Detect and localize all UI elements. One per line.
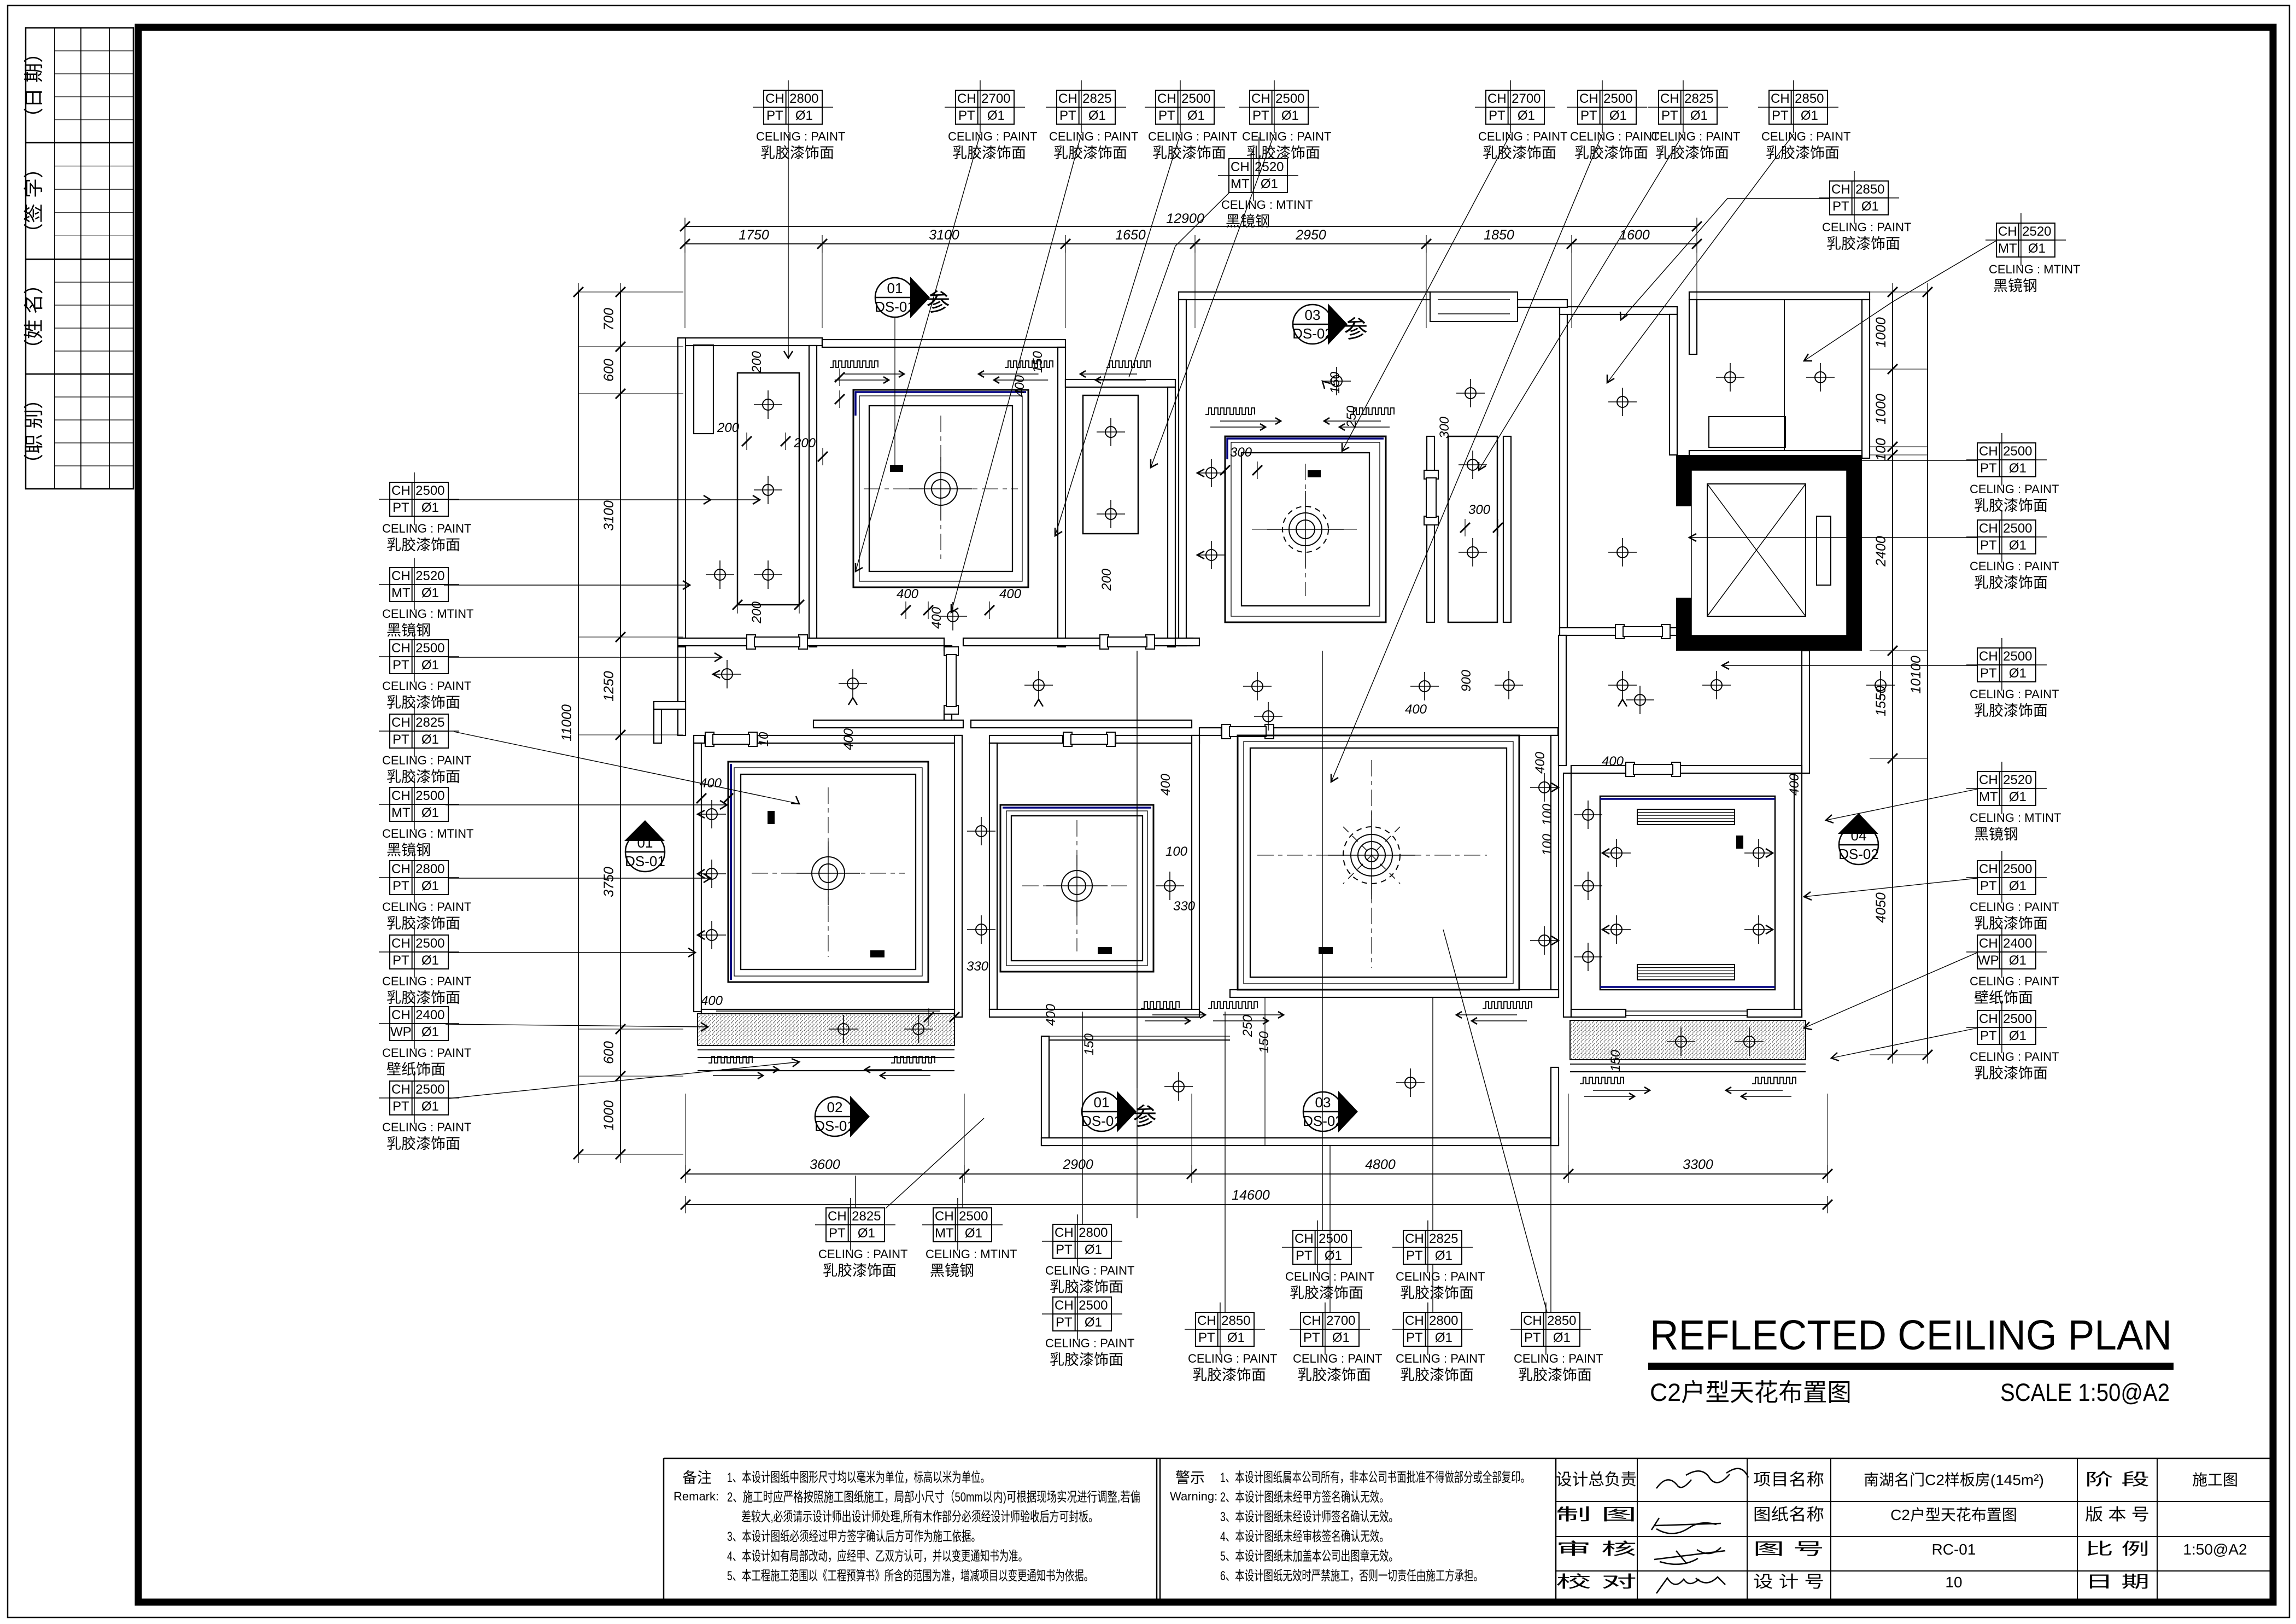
- svg-text:CELING : PAINT: CELING : PAINT: [1514, 1352, 1603, 1365]
- svg-text:400: 400: [999, 587, 1022, 601]
- svg-text:制 图: 制 图: [1556, 1506, 1637, 1524]
- svg-text:Ø1: Ø1: [421, 732, 439, 747]
- svg-text:100: 100: [1873, 438, 1889, 461]
- svg-text:2500: 2500: [1275, 91, 1304, 106]
- svg-text:乳胶漆饰面: 乳胶漆饰面: [1050, 1352, 1123, 1368]
- svg-text:400: 400: [701, 994, 723, 1008]
- svg-text:乳胶漆饰面: 乳胶漆饰面: [386, 694, 460, 711]
- svg-text:1000: 1000: [1873, 317, 1889, 348]
- svg-text:MT: MT: [391, 805, 411, 820]
- svg-text:Ø1: Ø1: [421, 879, 439, 893]
- svg-text:Ø1: Ø1: [421, 500, 439, 515]
- svg-text:MT: MT: [1979, 790, 1998, 804]
- svg-text:Ø1: Ø1: [2009, 461, 2026, 476]
- svg-text:400: 400: [1044, 1003, 1058, 1026]
- svg-text:MT: MT: [1998, 241, 2017, 256]
- svg-text:CH: CH: [391, 936, 411, 951]
- svg-text:Ø1: Ø1: [1187, 108, 1205, 123]
- svg-text:DS-01: DS-01: [1081, 1113, 1122, 1129]
- svg-text:03: 03: [1305, 307, 1321, 323]
- svg-text:Ø1: Ø1: [1518, 108, 1535, 123]
- svg-text:Ø1: Ø1: [2009, 953, 2026, 968]
- svg-text:参: 参: [1133, 1103, 1157, 1130]
- svg-text:PT: PT: [393, 1099, 409, 1114]
- svg-text:CELING : PAINT: CELING : PAINT: [1188, 1352, 1277, 1365]
- svg-text:PT: PT: [1832, 199, 1849, 214]
- svg-text:Ø1: Ø1: [1085, 1242, 1102, 1257]
- svg-text:250: 250: [1344, 405, 1359, 428]
- svg-text:PT: PT: [1296, 1248, 1313, 1263]
- svg-text:Ø1: Ø1: [1281, 108, 1299, 123]
- svg-text:CELING : PAINT: CELING : PAINT: [1570, 130, 1659, 143]
- svg-text:CH: CH: [1979, 862, 1998, 877]
- svg-text:CELING : PAINT: CELING : PAINT: [756, 130, 845, 143]
- svg-text:2、本设计图纸未经甲方签名确认无效。: 2、本设计图纸未经甲方签名确认无效。: [1220, 1489, 1389, 1505]
- svg-text:乳胶漆饰面: 乳胶漆饰面: [1766, 145, 1840, 161]
- svg-text:PT: PT: [1772, 108, 1789, 123]
- svg-text:CH: CH: [391, 1082, 411, 1097]
- svg-text:Remark:: Remark:: [673, 1489, 719, 1503]
- svg-text:CH: CH: [1979, 1012, 1998, 1026]
- svg-text:1750: 1750: [739, 227, 769, 243]
- svg-text:3、本设计图纸必须经过甲方签字确认后方可作为施工依据。: 3、本设计图纸必须经过甲方签字确认后方可作为施工依据。: [727, 1529, 981, 1544]
- svg-text:CH: CH: [1231, 160, 1250, 174]
- svg-text:100: 100: [1540, 833, 1555, 856]
- svg-text:CELING : PAINT: CELING : PAINT: [382, 900, 471, 914]
- svg-text:设计总负责: 设计总负责: [1556, 1471, 1637, 1489]
- svg-text:14600: 14600: [1232, 1188, 1270, 1203]
- svg-text:Ø1: Ø1: [1085, 1315, 1102, 1330]
- svg-text:2520: 2520: [415, 569, 444, 583]
- svg-text:CELING : PAINT: CELING : PAINT: [382, 753, 471, 767]
- svg-text:2500: 2500: [1079, 1298, 1108, 1313]
- svg-text:校 对: 校 对: [1556, 1573, 1637, 1591]
- svg-text:330: 330: [1173, 899, 1196, 914]
- svg-text:400: 400: [1533, 751, 1548, 774]
- svg-text:400: 400: [1602, 754, 1624, 769]
- svg-text:黑镜钢: 黑镜钢: [386, 842, 431, 858]
- svg-text:2825: 2825: [1429, 1231, 1458, 1246]
- svg-text:1、本设计图纸属本公司所有，非本公司书面批准不得做部分或全部: 1、本设计图纸属本公司所有，非本公司书面批准不得做部分或全部复印。: [1220, 1470, 1530, 1485]
- svg-text:200: 200: [793, 436, 816, 451]
- svg-text:CELING : PAINT: CELING : PAINT: [1970, 900, 2059, 914]
- svg-text:CELING : PAINT: CELING : PAINT: [1761, 130, 1850, 143]
- svg-text:2500: 2500: [415, 788, 444, 803]
- svg-text:WP: WP: [390, 1025, 412, 1039]
- svg-text:200: 200: [717, 420, 740, 435]
- svg-text:（职 别）: （职 别）: [22, 389, 45, 474]
- svg-text:CELING : MTINT: CELING : MTINT: [1989, 262, 2080, 276]
- svg-text:Ø1: Ø1: [987, 108, 1005, 123]
- svg-text:PT: PT: [1056, 1315, 1073, 1330]
- svg-text:乳胶漆饰面: 乳胶漆饰面: [1826, 236, 1900, 252]
- svg-text:CELING : PAINT: CELING : PAINT: [1970, 559, 2059, 573]
- svg-text:2850: 2850: [1221, 1313, 1250, 1328]
- svg-text:乳胶漆饰面: 乳胶漆饰面: [1192, 1367, 1266, 1383]
- svg-text:2825: 2825: [852, 1209, 881, 1224]
- svg-text:CH: CH: [391, 569, 411, 583]
- svg-text:2825: 2825: [1684, 91, 1713, 106]
- svg-text:CH: CH: [935, 1209, 954, 1224]
- svg-text:CELING : PAINT: CELING : PAINT: [1970, 482, 2059, 496]
- svg-text:2700: 2700: [1326, 1313, 1355, 1328]
- svg-text:CH: CH: [1251, 91, 1270, 106]
- svg-text:Ø1: Ø1: [1553, 1330, 1571, 1345]
- svg-text:DS-02: DS-02: [1838, 846, 1879, 862]
- svg-text:CH: CH: [1058, 91, 1077, 106]
- svg-text:乳胶漆饰面: 乳胶漆饰面: [1518, 1367, 1592, 1383]
- svg-text:3300: 3300: [1683, 1157, 1713, 1172]
- svg-text:PT: PT: [1980, 666, 1997, 681]
- svg-text:Ø1: Ø1: [421, 953, 439, 968]
- svg-text:CH: CH: [391, 1008, 411, 1023]
- svg-text:1550: 1550: [1873, 686, 1889, 716]
- svg-text:CH: CH: [1660, 91, 1679, 106]
- svg-text:乳胶漆饰面: 乳胶漆饰面: [823, 1263, 897, 1279]
- svg-text:CELING : PAINT: CELING : PAINT: [948, 130, 1037, 143]
- svg-text:12900: 12900: [1166, 211, 1204, 226]
- svg-text:1000: 1000: [601, 1100, 617, 1131]
- svg-text:乳胶漆饰面: 乳胶漆饰面: [1655, 145, 1729, 161]
- svg-text:CH: CH: [1405, 1313, 1424, 1328]
- svg-text:CELING : PAINT: CELING : PAINT: [1396, 1270, 1485, 1283]
- svg-text:差较大,必须请示设计师出设计师处理,所有木作部分必须经设计师: 差较大,必须请示设计师出设计师处理,所有木作部分必须经设计师验收后方可封板。: [741, 1509, 1098, 1524]
- svg-text:4、本设计如有局部改动，应经甲、乙双方认可，并以变更通知书为: 4、本设计如有局部改动，应经甲、乙双方认可，并以变更通知书为准。: [727, 1549, 1028, 1564]
- svg-text:RC-01: RC-01: [1932, 1541, 1976, 1558]
- svg-text:4、本设计图纸未经审核签名确认无效。: 4、本设计图纸未经审核签名确认无效。: [1220, 1529, 1389, 1544]
- svg-text:4050: 4050: [1873, 892, 1889, 923]
- svg-text:2800: 2800: [789, 91, 818, 106]
- svg-text:150: 150: [1030, 350, 1045, 373]
- svg-text:审 核: 审 核: [1556, 1540, 1637, 1558]
- svg-text:2700: 2700: [1512, 91, 1541, 106]
- svg-text:Ø1: Ø1: [421, 1099, 439, 1114]
- svg-text:PT: PT: [1158, 108, 1175, 123]
- svg-text:CH: CH: [391, 788, 411, 803]
- svg-text:6、本设计图纸无效时严禁施工，否则一切责任由施工方承担。: 6、本设计图纸无效时严禁施工，否则一切责任由施工方承担。: [1220, 1568, 1483, 1584]
- svg-text:2500: 2500: [1181, 91, 1210, 106]
- svg-text:1850: 1850: [1484, 227, 1514, 243]
- svg-text:2700: 2700: [981, 91, 1010, 106]
- svg-text:Ø1: Ø1: [1690, 108, 1708, 123]
- svg-text:2500: 2500: [1603, 91, 1632, 106]
- svg-text:乳胶漆饰面: 乳胶漆饰面: [1974, 1065, 2048, 1082]
- svg-text:2800: 2800: [1429, 1313, 1458, 1328]
- svg-text:CELING : PAINT: CELING : PAINT: [1970, 974, 2059, 988]
- svg-text:乳胶漆饰面: 乳胶漆饰面: [1483, 145, 1556, 161]
- svg-text:300: 300: [1230, 445, 1252, 460]
- svg-text:900: 900: [1459, 669, 1474, 692]
- svg-text:Ø1: Ø1: [1435, 1248, 1452, 1263]
- svg-text:PT: PT: [1524, 1330, 1541, 1345]
- svg-text:150: 150: [1608, 1049, 1623, 1072]
- svg-text:CELING : MTINT: CELING : MTINT: [926, 1247, 1017, 1261]
- svg-text:CELING : PAINT: CELING : PAINT: [1970, 687, 2059, 701]
- svg-text:2500: 2500: [959, 1209, 988, 1224]
- svg-text:PT: PT: [393, 500, 409, 515]
- svg-text:01: 01: [887, 280, 903, 296]
- svg-text:300: 300: [1468, 503, 1491, 517]
- svg-text:乳胶漆饰面: 乳胶漆饰面: [1290, 1285, 1363, 1301]
- svg-text:DS-01: DS-01: [625, 853, 665, 869]
- svg-text:10: 10: [1945, 1574, 1962, 1591]
- svg-text:2500: 2500: [2003, 649, 2032, 664]
- svg-text:CELING : PAINT: CELING : PAINT: [1396, 1352, 1485, 1365]
- svg-text:黑镜钢: 黑镜钢: [1974, 826, 2018, 843]
- svg-text:PT: PT: [1198, 1330, 1215, 1345]
- svg-text:乳胶漆饰面: 乳胶漆饰面: [1974, 915, 2048, 932]
- svg-text:乳胶漆饰面: 乳胶漆饰面: [1297, 1367, 1371, 1383]
- svg-text:2400: 2400: [1873, 536, 1889, 567]
- svg-text:PT: PT: [766, 108, 783, 123]
- svg-text:PT: PT: [1661, 108, 1678, 123]
- svg-text:乳胶漆饰面: 乳胶漆饰面: [1400, 1367, 1474, 1383]
- svg-text:CH: CH: [1998, 224, 2017, 239]
- svg-text:400: 400: [1787, 773, 1802, 796]
- svg-text:DS-02: DS-02: [1292, 325, 1333, 342]
- svg-text:Ø1: Ø1: [421, 1025, 439, 1039]
- svg-text:PT: PT: [1303, 1330, 1320, 1345]
- svg-text:2500: 2500: [415, 1082, 444, 1097]
- svg-text:乳胶漆饰面: 乳胶漆饰面: [1974, 498, 2048, 514]
- svg-text:PT: PT: [393, 732, 409, 747]
- svg-text:150: 150: [1328, 371, 1343, 394]
- svg-text:400: 400: [1012, 375, 1027, 397]
- svg-text:5、本设计图纸未加盖本公司出图章无效。: 5、本设计图纸未加盖本公司出图章无效。: [1220, 1549, 1398, 1564]
- svg-text:乳胶漆饰面: 乳胶漆饰面: [1053, 145, 1127, 161]
- svg-text:2、施工时应严格按照施工图纸施工，局部小尺寸（50mm以内): 2、施工时应严格按照施工图纸施工，局部小尺寸（50mm以内)可根据现场实况进行调…: [727, 1489, 1140, 1505]
- svg-text:5、本工程施工范围以《工程预算书》所含的范围为准，增减项目以: 5、本工程施工范围以《工程预算书》所含的范围为准，增减项目以变更通知书为依据。: [727, 1568, 1093, 1584]
- svg-text:300: 300: [1437, 416, 1452, 439]
- svg-text:SCALE 1:50@A2: SCALE 1:50@A2: [2000, 1378, 2170, 1406]
- svg-text:2800: 2800: [1079, 1225, 1108, 1240]
- svg-text:Ø1: Ø1: [2009, 1029, 2026, 1043]
- svg-text:PT: PT: [1980, 1029, 1997, 1043]
- svg-text:备注: 备注: [682, 1470, 712, 1486]
- svg-text:CELING : PAINT: CELING : PAINT: [382, 522, 471, 535]
- svg-text:CH: CH: [1579, 91, 1598, 106]
- svg-text:CELING : PAINT: CELING : PAINT: [382, 974, 471, 988]
- svg-text:Ø1: Ø1: [1801, 108, 1818, 123]
- svg-text:图纸名称: 图纸名称: [1753, 1506, 1824, 1524]
- svg-text:10100: 10100: [1908, 656, 1924, 694]
- svg-text:CH: CH: [1295, 1231, 1314, 1246]
- svg-text:CELING : PAINT: CELING : PAINT: [1478, 130, 1567, 143]
- svg-text:阶 段: 阶 段: [2085, 1471, 2149, 1489]
- svg-text:MT: MT: [391, 586, 411, 600]
- svg-text:（姓 名）: （姓 名）: [22, 274, 45, 359]
- svg-text:设 计 号: 设 计 号: [1753, 1573, 1824, 1591]
- svg-text:乳胶漆饰面: 乳胶漆饰面: [386, 990, 460, 1006]
- svg-text:MT: MT: [1231, 177, 1250, 191]
- svg-text:2500: 2500: [2003, 521, 2032, 536]
- svg-text:乳胶漆饰面: 乳胶漆饰面: [1974, 575, 2048, 591]
- svg-text:乳胶漆饰面: 乳胶漆饰面: [1974, 703, 2048, 719]
- svg-text:CELING : MTINT: CELING : MTINT: [1970, 811, 2061, 825]
- svg-text:乳胶漆饰面: 乳胶漆饰面: [1574, 145, 1648, 161]
- svg-text:2950: 2950: [1295, 227, 1326, 243]
- svg-text:2500: 2500: [2003, 862, 2032, 877]
- svg-text:CELING : MTINT: CELING : MTINT: [382, 607, 473, 621]
- svg-text:CELING : PAINT: CELING : PAINT: [382, 1046, 471, 1060]
- svg-text:CH: CH: [391, 715, 411, 730]
- svg-text:乳胶漆饰面: 乳胶漆饰面: [1152, 145, 1226, 161]
- svg-text:CH: CH: [1831, 182, 1850, 197]
- svg-text:比 例: 比 例: [2085, 1540, 2149, 1558]
- svg-text:DS-01: DS-01: [815, 1118, 855, 1134]
- svg-text:2500: 2500: [1319, 1231, 1348, 1246]
- svg-text:CELING : PAINT: CELING : PAINT: [1970, 1050, 2059, 1064]
- svg-text:壁纸饰面: 壁纸饰面: [1974, 990, 2033, 1006]
- svg-text:Ø1: Ø1: [1088, 108, 1106, 123]
- svg-text:200: 200: [1099, 568, 1114, 591]
- svg-text:PT: PT: [1252, 108, 1269, 123]
- svg-text:2520: 2520: [2022, 224, 2051, 239]
- svg-text:Ø1: Ø1: [1861, 199, 1879, 214]
- svg-text:1250: 1250: [601, 671, 617, 702]
- svg-text:版 本 号: 版 本 号: [2085, 1506, 2149, 1524]
- svg-text:10: 10: [757, 732, 771, 746]
- svg-text:Ø1: Ø1: [1435, 1330, 1452, 1345]
- svg-text:CELING : PAINT: CELING : PAINT: [382, 679, 471, 693]
- svg-text:乳胶漆饰面: 乳胶漆饰面: [386, 1136, 460, 1152]
- svg-text:CH: CH: [1523, 1313, 1542, 1328]
- svg-text:Ø1: Ø1: [965, 1226, 982, 1241]
- svg-text:2400: 2400: [2003, 936, 2032, 951]
- svg-text:200: 200: [749, 601, 764, 624]
- svg-text:Ø1: Ø1: [2028, 241, 2046, 256]
- svg-text:乳胶漆饰面: 乳胶漆饰面: [1050, 1279, 1123, 1295]
- svg-text:参: 参: [1344, 316, 1368, 343]
- svg-text:Ø1: Ø1: [421, 658, 439, 673]
- svg-text:CH: CH: [1405, 1231, 1424, 1246]
- svg-text:Ø1: Ø1: [795, 108, 813, 123]
- svg-text:PT: PT: [393, 658, 409, 673]
- svg-text:REFLECTED CEILING PLAN: REFLECTED CEILING PLAN: [1650, 1312, 2172, 1359]
- svg-text:Ø1: Ø1: [1227, 1330, 1245, 1345]
- svg-text:CH: CH: [957, 91, 976, 106]
- svg-text:黑镜钢: 黑镜钢: [1226, 213, 1270, 230]
- svg-text:400: 400: [700, 776, 722, 791]
- svg-text:Ø1: Ø1: [421, 586, 439, 600]
- svg-text:CELING : PAINT: CELING : PAINT: [1242, 130, 1331, 143]
- svg-text:2825: 2825: [1082, 91, 1111, 106]
- svg-text:400: 400: [841, 728, 856, 750]
- svg-text:PT: PT: [1980, 461, 1997, 476]
- svg-text:1:50@A2: 1:50@A2: [2183, 1541, 2247, 1558]
- svg-text:PT: PT: [1056, 1242, 1073, 1257]
- svg-text:3600: 3600: [810, 1157, 840, 1172]
- svg-text:施工图: 施工图: [2192, 1471, 2238, 1488]
- svg-text:（签 字）: （签 字）: [22, 159, 45, 243]
- svg-text:C2户型天花布置图: C2户型天花布置图: [1890, 1506, 2017, 1523]
- svg-text:南湖名门C2样板房(145m²): 南湖名门C2样板房(145m²): [1864, 1471, 2044, 1488]
- svg-text:200: 200: [749, 350, 764, 373]
- svg-text:2500: 2500: [2003, 444, 2032, 459]
- svg-text:150: 150: [1257, 1031, 1272, 1053]
- svg-text:Warning:: Warning:: [1170, 1489, 1217, 1503]
- svg-text:CELING : PAINT: CELING : PAINT: [1049, 130, 1138, 143]
- svg-text:CH: CH: [1979, 936, 1998, 951]
- svg-text:3100: 3100: [601, 500, 617, 531]
- svg-text:400: 400: [1405, 702, 1427, 717]
- svg-text:PT: PT: [1580, 108, 1597, 123]
- svg-text:CELING : PAINT: CELING : PAINT: [818, 1247, 907, 1261]
- svg-text:PT: PT: [393, 953, 409, 968]
- svg-text:CH: CH: [391, 641, 411, 656]
- svg-text:CH: CH: [1979, 444, 1998, 459]
- svg-text:项目名称: 项目名称: [1753, 1471, 1824, 1489]
- svg-text:1650: 1650: [1115, 227, 1146, 243]
- svg-text:Ø1: Ø1: [2009, 790, 2026, 804]
- svg-text:CELING : PAINT: CELING : PAINT: [1045, 1336, 1134, 1350]
- svg-text:PT: PT: [1980, 879, 1997, 893]
- svg-text:4800: 4800: [1365, 1157, 1396, 1172]
- svg-text:CH: CH: [1487, 91, 1507, 106]
- svg-text:图 号: 图 号: [1753, 1540, 1824, 1558]
- svg-text:3100: 3100: [929, 227, 959, 243]
- svg-text:PT: PT: [958, 108, 975, 123]
- svg-text:2500: 2500: [415, 483, 444, 498]
- svg-text:MT: MT: [935, 1226, 954, 1241]
- svg-text:01: 01: [1094, 1094, 1110, 1111]
- svg-text:CH: CH: [1157, 91, 1176, 106]
- svg-text:Ø1: Ø1: [1261, 177, 1278, 191]
- svg-text:2400: 2400: [415, 1008, 444, 1023]
- svg-text:警示: 警示: [1175, 1470, 1205, 1486]
- svg-text:CELING : PAINT: CELING : PAINT: [1148, 130, 1237, 143]
- svg-text:400: 400: [1158, 773, 1173, 796]
- svg-text:02: 02: [827, 1099, 843, 1115]
- svg-text:1600: 1600: [1619, 227, 1650, 243]
- svg-text:2850: 2850: [1547, 1313, 1576, 1328]
- svg-text:Ø1: Ø1: [1609, 108, 1627, 123]
- svg-text:CH: CH: [1302, 1313, 1321, 1328]
- svg-text:600: 600: [601, 359, 617, 382]
- svg-text:乳胶漆饰面: 乳胶漆饰面: [760, 145, 834, 161]
- svg-text:乳胶漆饰面: 乳胶漆饰面: [952, 145, 1026, 161]
- svg-text:壁纸饰面: 壁纸饰面: [386, 1061, 446, 1078]
- svg-text:PT: PT: [1489, 108, 1506, 123]
- svg-text:DS-01: DS-01: [875, 299, 915, 315]
- svg-text:CH: CH: [1055, 1298, 1074, 1313]
- svg-text:CH: CH: [391, 862, 411, 877]
- svg-text:C2户型天花布置图: C2户型天花布置图: [1650, 1378, 1852, 1406]
- svg-text:CELING : PAINT: CELING : PAINT: [1045, 1264, 1134, 1277]
- svg-text:CELING : PAINT: CELING : PAINT: [1651, 130, 1740, 143]
- svg-text:CH: CH: [1979, 773, 1998, 787]
- svg-text:CH: CH: [1771, 91, 1790, 106]
- svg-text:WP: WP: [1978, 953, 1999, 968]
- svg-text:11000: 11000: [559, 704, 575, 741]
- svg-text:CELING : PAINT: CELING : PAINT: [1293, 1352, 1382, 1365]
- svg-text:PT: PT: [1059, 108, 1076, 123]
- svg-text:日 期: 日 期: [2085, 1573, 2149, 1591]
- svg-text:CELING : PAINT: CELING : PAINT: [1822, 220, 1911, 234]
- svg-text:250: 250: [1240, 1014, 1255, 1037]
- svg-text:CH: CH: [1979, 649, 1998, 664]
- svg-text:乳胶漆饰面: 乳胶漆饰面: [386, 769, 460, 785]
- svg-text:100: 100: [1165, 844, 1188, 859]
- svg-text:2850: 2850: [1855, 182, 1884, 197]
- svg-text:PT: PT: [1406, 1330, 1423, 1345]
- svg-text:CH: CH: [765, 91, 784, 106]
- svg-text:黑镜钢: 黑镜钢: [930, 1263, 974, 1279]
- svg-text:330: 330: [967, 959, 989, 974]
- svg-text:CH: CH: [1197, 1313, 1216, 1328]
- svg-text:3、本设计图纸未经设计师签名确认无效。: 3、本设计图纸未经设计师签名确认无效。: [1220, 1509, 1398, 1524]
- svg-text:乳胶漆饰面: 乳胶漆饰面: [386, 915, 460, 932]
